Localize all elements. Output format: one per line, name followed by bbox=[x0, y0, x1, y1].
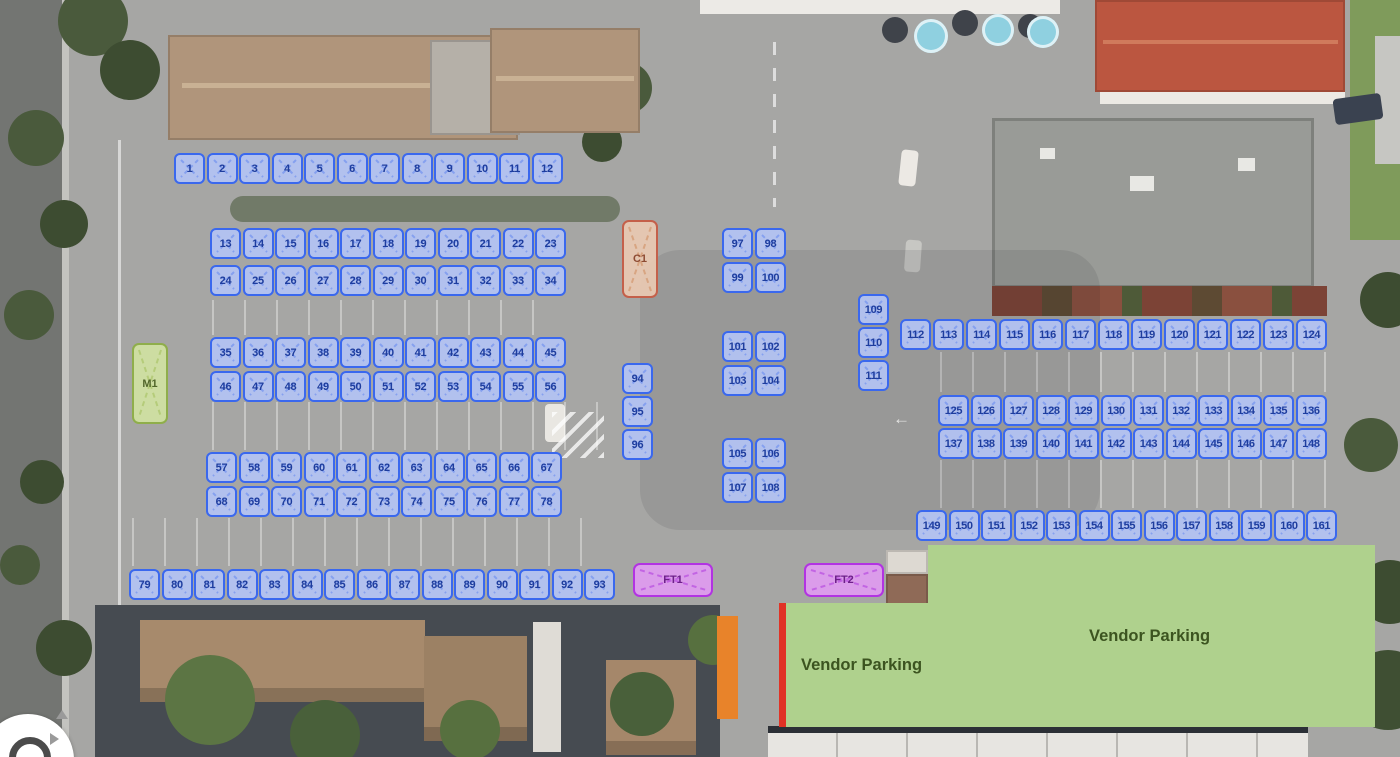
booth-number: 24 bbox=[220, 275, 232, 287]
booth-number: 113 bbox=[940, 329, 957, 341]
special-booth-label: FT1 bbox=[663, 574, 683, 586]
booth-number: 125 bbox=[945, 405, 962, 417]
booth-number: 141 bbox=[1075, 438, 1092, 450]
booth-29[interactable]: 29 bbox=[373, 265, 404, 296]
booth-number: 59 bbox=[281, 462, 293, 474]
booth-41[interactable]: 41 bbox=[405, 337, 436, 368]
booth-130[interactable]: 130 bbox=[1101, 395, 1132, 426]
booth-number: 30 bbox=[415, 275, 427, 287]
booth-156[interactable]: 156 bbox=[1144, 510, 1175, 541]
booth-115[interactable]: 115 bbox=[999, 319, 1030, 350]
booth-number: 97 bbox=[732, 238, 744, 250]
booth-59[interactable]: 59 bbox=[271, 452, 302, 483]
driveway bbox=[533, 622, 561, 752]
booth-75[interactable]: 75 bbox=[434, 486, 465, 517]
booth-number: 123 bbox=[1270, 329, 1287, 341]
tree bbox=[4, 290, 54, 340]
booth-122[interactable]: 122 bbox=[1230, 319, 1261, 350]
booth-number: 86 bbox=[366, 579, 378, 591]
booth-number: 19 bbox=[415, 238, 427, 250]
booth-74[interactable]: 74 bbox=[401, 486, 432, 517]
booth-number: 147 bbox=[1270, 438, 1287, 450]
booth-60[interactable]: 60 bbox=[304, 452, 335, 483]
booth-26[interactable]: 26 bbox=[275, 265, 306, 296]
booth-117[interactable]: 117 bbox=[1065, 319, 1096, 350]
booth-number: 143 bbox=[1140, 438, 1157, 450]
booth-number: 42 bbox=[447, 347, 459, 359]
booth-158[interactable]: 158 bbox=[1209, 510, 1240, 541]
special-booth-label: C1 bbox=[633, 253, 647, 265]
booth-8[interactable]: 8 bbox=[402, 153, 433, 184]
booth-number: 156 bbox=[1150, 520, 1167, 532]
curb-line bbox=[118, 140, 121, 630]
booth-number: 15 bbox=[285, 238, 297, 250]
booth-50[interactable]: 50 bbox=[340, 371, 371, 402]
booth-67[interactable]: 67 bbox=[531, 452, 562, 483]
booth-number: 56 bbox=[545, 381, 557, 393]
booth-15[interactable]: 15 bbox=[275, 228, 306, 259]
booth-number: 104 bbox=[762, 375, 779, 387]
roof-unit bbox=[1238, 158, 1255, 171]
road-arrow-left-icon: ← bbox=[893, 410, 910, 427]
special-booth-label: FT2 bbox=[834, 574, 854, 586]
booth-123[interactable]: 123 bbox=[1263, 319, 1294, 350]
booth-13[interactable]: 13 bbox=[210, 228, 241, 259]
vendor-market-map: ← Vendor ParkingVendor Parking 123456789… bbox=[0, 0, 1400, 757]
booth-number: 62 bbox=[378, 462, 390, 474]
booth-126[interactable]: 126 bbox=[971, 395, 1002, 426]
booth-81[interactable]: 81 bbox=[194, 569, 225, 600]
building-white-bottom bbox=[768, 733, 1308, 757]
booth-number: 99 bbox=[732, 272, 744, 284]
booth-56[interactable]: 56 bbox=[535, 371, 566, 402]
booth-number: 103 bbox=[729, 375, 746, 387]
booth-number: 73 bbox=[378, 496, 390, 508]
booth-40[interactable]: 40 bbox=[373, 337, 404, 368]
booth-30[interactable]: 30 bbox=[405, 265, 436, 296]
booth-number: 4 bbox=[284, 163, 290, 175]
booth-25[interactable]: 25 bbox=[243, 265, 274, 296]
booth-36[interactable]: 36 bbox=[243, 337, 274, 368]
booth-89[interactable]: 89 bbox=[454, 569, 485, 600]
booth-97[interactable]: 97 bbox=[722, 228, 753, 259]
booth-57[interactable]: 57 bbox=[206, 452, 237, 483]
booth-101[interactable]: 101 bbox=[722, 331, 753, 362]
booth-4[interactable]: 4 bbox=[272, 153, 303, 184]
vendor-parking-left-label: Vendor Parking bbox=[801, 656, 922, 675]
booth-83[interactable]: 83 bbox=[259, 569, 290, 600]
booth-number: 29 bbox=[382, 275, 394, 287]
booth-103[interactable]: 103 bbox=[722, 365, 753, 396]
booth-number: 139 bbox=[1010, 438, 1027, 450]
booth-125[interactable]: 125 bbox=[938, 395, 969, 426]
booth-153[interactable]: 153 bbox=[1046, 510, 1077, 541]
booth-number: 48 bbox=[285, 381, 297, 393]
booth-62[interactable]: 62 bbox=[369, 452, 400, 483]
booth-number: 53 bbox=[447, 381, 459, 393]
booth-151[interactable]: 151 bbox=[981, 510, 1012, 541]
booth-number: 96 bbox=[632, 439, 644, 451]
booth-number: 154 bbox=[1085, 520, 1102, 532]
booth-108[interactable]: 108 bbox=[755, 472, 786, 503]
booth-152[interactable]: 152 bbox=[1014, 510, 1045, 541]
tree bbox=[1344, 418, 1398, 472]
booth-number: 17 bbox=[350, 238, 362, 250]
booth-47[interactable]: 47 bbox=[243, 371, 274, 402]
booth-number: 145 bbox=[1205, 438, 1222, 450]
booth-12[interactable]: 12 bbox=[532, 153, 563, 184]
booth-number: 144 bbox=[1172, 438, 1189, 450]
booth-number: 114 bbox=[973, 329, 990, 341]
booth-150[interactable]: 150 bbox=[949, 510, 980, 541]
booth-87[interactable]: 87 bbox=[389, 569, 420, 600]
booth-142[interactable]: 142 bbox=[1101, 428, 1132, 459]
special-booth-label: M1 bbox=[142, 378, 157, 390]
booth-14[interactable]: 14 bbox=[243, 228, 274, 259]
booth-128[interactable]: 128 bbox=[1036, 395, 1067, 426]
booth-44[interactable]: 44 bbox=[503, 337, 534, 368]
booth-46[interactable]: 46 bbox=[210, 371, 241, 402]
booth-23[interactable]: 23 bbox=[535, 228, 566, 259]
booth-number: 25 bbox=[252, 275, 264, 287]
booth-134[interactable]: 134 bbox=[1231, 395, 1262, 426]
booth-48[interactable]: 48 bbox=[275, 371, 306, 402]
booth-138[interactable]: 138 bbox=[971, 428, 1002, 459]
booth-number: 93 bbox=[594, 579, 606, 591]
booth-107[interactable]: 107 bbox=[722, 472, 753, 503]
booth-120[interactable]: 120 bbox=[1164, 319, 1195, 350]
booth-53[interactable]: 53 bbox=[438, 371, 469, 402]
tree bbox=[40, 200, 88, 248]
booth-number: 43 bbox=[480, 347, 492, 359]
booth-104[interactable]: 104 bbox=[755, 365, 786, 396]
booth-66[interactable]: 66 bbox=[499, 452, 530, 483]
booth-number: 121 bbox=[1204, 329, 1221, 341]
booth-136[interactable]: 136 bbox=[1296, 395, 1327, 426]
booth-number: 100 bbox=[762, 272, 779, 284]
booth-94[interactable]: 94 bbox=[622, 363, 653, 394]
booth-number: 8 bbox=[414, 163, 420, 175]
booth-number: 74 bbox=[411, 496, 423, 508]
special-booth-ft2[interactable]: FT2 bbox=[804, 563, 884, 597]
booth-71[interactable]: 71 bbox=[304, 486, 335, 517]
booth-79[interactable]: 79 bbox=[129, 569, 160, 600]
booth-63[interactable]: 63 bbox=[401, 452, 432, 483]
booth-92[interactable]: 92 bbox=[552, 569, 583, 600]
booth-number: 112 bbox=[907, 329, 924, 341]
booth-73[interactable]: 73 bbox=[369, 486, 400, 517]
special-booth-m1[interactable]: M1 bbox=[132, 343, 168, 424]
booth-number: 153 bbox=[1053, 520, 1070, 532]
booth-121[interactable]: 121 bbox=[1197, 319, 1228, 350]
booth-129[interactable]: 129 bbox=[1068, 395, 1099, 426]
storage-tank bbox=[982, 14, 1014, 46]
booth-139[interactable]: 139 bbox=[1003, 428, 1034, 459]
booth-number: 119 bbox=[1138, 329, 1155, 341]
booth-96[interactable]: 96 bbox=[622, 429, 653, 460]
roof-unit bbox=[1040, 148, 1055, 159]
booth-49[interactable]: 49 bbox=[308, 371, 339, 402]
tree bbox=[36, 620, 92, 676]
booth-137[interactable]: 137 bbox=[938, 428, 969, 459]
booth-112[interactable]: 112 bbox=[900, 319, 931, 350]
booth-113[interactable]: 113 bbox=[933, 319, 964, 350]
booth-number: 36 bbox=[252, 347, 264, 359]
booth-110[interactable]: 110 bbox=[858, 327, 889, 358]
booth-number: 148 bbox=[1302, 438, 1319, 450]
booth-number: 158 bbox=[1215, 520, 1232, 532]
booth-number: 65 bbox=[476, 462, 488, 474]
booth-number: 32 bbox=[480, 275, 492, 287]
booth-24[interactable]: 24 bbox=[210, 265, 241, 296]
booth-65[interactable]: 65 bbox=[466, 452, 497, 483]
booth-114[interactable]: 114 bbox=[966, 319, 997, 350]
storage-tank bbox=[1027, 16, 1059, 48]
booth-148[interactable]: 148 bbox=[1296, 428, 1327, 459]
booth-number: 117 bbox=[1072, 329, 1089, 341]
booth-93[interactable]: 93 bbox=[584, 569, 615, 600]
booth-76[interactable]: 76 bbox=[466, 486, 497, 517]
booth-42[interactable]: 42 bbox=[438, 337, 469, 368]
booth-86[interactable]: 86 bbox=[357, 569, 388, 600]
pan-up-arrow-icon[interactable] bbox=[56, 710, 68, 719]
booth-5[interactable]: 5 bbox=[304, 153, 335, 184]
booth-number: 38 bbox=[317, 347, 329, 359]
booth-number: 92 bbox=[561, 579, 573, 591]
booth-140[interactable]: 140 bbox=[1036, 428, 1067, 459]
tree bbox=[8, 110, 64, 166]
booth-number: 80 bbox=[171, 579, 183, 591]
booth-number: 13 bbox=[220, 238, 232, 250]
booth-35[interactable]: 35 bbox=[210, 337, 241, 368]
booth-135[interactable]: 135 bbox=[1263, 395, 1294, 426]
booth-number: 89 bbox=[464, 579, 476, 591]
booth-number: 131 bbox=[1140, 405, 1157, 417]
tree bbox=[440, 700, 500, 757]
booth-99[interactable]: 99 bbox=[722, 262, 753, 293]
booth-143[interactable]: 143 bbox=[1133, 428, 1164, 459]
booth-9[interactable]: 9 bbox=[434, 153, 465, 184]
booth-number: 45 bbox=[545, 347, 557, 359]
booth-number: 90 bbox=[496, 579, 508, 591]
parking-lines bbox=[212, 402, 604, 450]
booth-124[interactable]: 124 bbox=[1296, 319, 1327, 350]
booth-28[interactable]: 28 bbox=[340, 265, 371, 296]
booth-161[interactable]: 161 bbox=[1306, 510, 1337, 541]
booth-number: 102 bbox=[762, 341, 779, 353]
storage-tank bbox=[952, 10, 978, 36]
booth-number: 124 bbox=[1303, 329, 1320, 341]
booth-number: 49 bbox=[317, 381, 329, 393]
booth-132[interactable]: 132 bbox=[1166, 395, 1197, 426]
booth-27[interactable]: 27 bbox=[308, 265, 339, 296]
booth-number: 98 bbox=[765, 238, 777, 250]
booth-127[interactable]: 127 bbox=[1003, 395, 1034, 426]
booth-58[interactable]: 58 bbox=[239, 452, 270, 483]
booth-51[interactable]: 51 bbox=[373, 371, 404, 402]
special-booth-c1[interactable]: C1 bbox=[622, 220, 658, 298]
booth-number: 34 bbox=[545, 275, 557, 287]
booth-number: 108 bbox=[762, 482, 779, 494]
booth-39[interactable]: 39 bbox=[340, 337, 371, 368]
booth-77[interactable]: 77 bbox=[499, 486, 530, 517]
booth-34[interactable]: 34 bbox=[535, 265, 566, 296]
zone-red-barrier bbox=[779, 603, 786, 727]
tree bbox=[100, 40, 160, 100]
booth-52[interactable]: 52 bbox=[405, 371, 436, 402]
pan-right-arrow-icon[interactable] bbox=[50, 733, 59, 745]
booth-102[interactable]: 102 bbox=[755, 331, 786, 362]
small-building-white bbox=[886, 550, 928, 574]
booth-43[interactable]: 43 bbox=[470, 337, 501, 368]
booth-number: 40 bbox=[382, 347, 394, 359]
booth-38[interactable]: 38 bbox=[308, 337, 339, 368]
booth-number: 88 bbox=[431, 579, 443, 591]
booth-31[interactable]: 31 bbox=[438, 265, 469, 296]
booth-154[interactable]: 154 bbox=[1079, 510, 1110, 541]
booth-number: 23 bbox=[545, 238, 557, 250]
booth-88[interactable]: 88 bbox=[422, 569, 453, 600]
booth-number: 151 bbox=[988, 520, 1005, 532]
booth-6[interactable]: 6 bbox=[337, 153, 368, 184]
booth-82[interactable]: 82 bbox=[227, 569, 258, 600]
booth-72[interactable]: 72 bbox=[336, 486, 367, 517]
booth-number: 70 bbox=[281, 496, 293, 508]
booth-149[interactable]: 149 bbox=[916, 510, 947, 541]
booth-number: 127 bbox=[1010, 405, 1027, 417]
booth-147[interactable]: 147 bbox=[1263, 428, 1294, 459]
booth-69[interactable]: 69 bbox=[239, 486, 270, 517]
booth-number: 64 bbox=[443, 462, 455, 474]
booth-number: 130 bbox=[1107, 405, 1124, 417]
booth-number: 57 bbox=[216, 462, 228, 474]
booth-91[interactable]: 91 bbox=[519, 569, 550, 600]
booth-number: 137 bbox=[945, 438, 962, 450]
building-red-roof bbox=[1095, 0, 1345, 92]
booth-11[interactable]: 11 bbox=[499, 153, 530, 184]
booth-number: 75 bbox=[443, 496, 455, 508]
booth-85[interactable]: 85 bbox=[324, 569, 355, 600]
booth-159[interactable]: 159 bbox=[1241, 510, 1272, 541]
booth-90[interactable]: 90 bbox=[487, 569, 518, 600]
booth-118[interactable]: 118 bbox=[1098, 319, 1129, 350]
booth-80[interactable]: 80 bbox=[162, 569, 193, 600]
tree bbox=[165, 655, 255, 745]
booth-157[interactable]: 157 bbox=[1176, 510, 1207, 541]
booth-37[interactable]: 37 bbox=[275, 337, 306, 368]
roof-unit bbox=[1130, 176, 1154, 191]
booth-number: 87 bbox=[399, 579, 411, 591]
booth-144[interactable]: 144 bbox=[1166, 428, 1197, 459]
booth-number: 129 bbox=[1075, 405, 1092, 417]
booth-number: 6 bbox=[349, 163, 355, 175]
booth-number: 55 bbox=[512, 381, 524, 393]
booth-number: 134 bbox=[1237, 405, 1254, 417]
booth-68[interactable]: 68 bbox=[206, 486, 237, 517]
booth-10[interactable]: 10 bbox=[467, 153, 498, 184]
booth-16[interactable]: 16 bbox=[308, 228, 339, 259]
booth-111[interactable]: 111 bbox=[858, 360, 889, 391]
booth-54[interactable]: 54 bbox=[470, 371, 501, 402]
booth-number: 33 bbox=[512, 275, 524, 287]
hatched-no-parking bbox=[552, 412, 604, 458]
booth-number: 133 bbox=[1205, 405, 1222, 417]
booth-109[interactable]: 109 bbox=[858, 294, 889, 325]
booth-number: 135 bbox=[1270, 405, 1287, 417]
booth-number: 72 bbox=[346, 496, 358, 508]
booth-61[interactable]: 61 bbox=[336, 452, 367, 483]
booth-number: 110 bbox=[865, 337, 882, 349]
booth-number: 116 bbox=[1039, 329, 1056, 341]
booth-32[interactable]: 32 bbox=[470, 265, 501, 296]
booth-number: 115 bbox=[1006, 329, 1023, 341]
booth-number: 128 bbox=[1042, 405, 1059, 417]
booth-number: 140 bbox=[1042, 438, 1059, 450]
booth-number: 46 bbox=[220, 381, 232, 393]
booth-100[interactable]: 100 bbox=[755, 262, 786, 293]
booth-17[interactable]: 17 bbox=[340, 228, 371, 259]
booth-number: 94 bbox=[632, 373, 644, 385]
tree bbox=[610, 672, 674, 736]
booth-number: 14 bbox=[252, 238, 264, 250]
booth-number: 41 bbox=[415, 347, 427, 359]
tree bbox=[20, 460, 64, 504]
booth-78[interactable]: 78 bbox=[531, 486, 562, 517]
booth-1[interactable]: 1 bbox=[174, 153, 205, 184]
booth-33[interactable]: 33 bbox=[503, 265, 534, 296]
booth-21[interactable]: 21 bbox=[470, 228, 501, 259]
booth-22[interactable]: 22 bbox=[503, 228, 534, 259]
booth-55[interactable]: 55 bbox=[503, 371, 534, 402]
booth-70[interactable]: 70 bbox=[271, 486, 302, 517]
booth-160[interactable]: 160 bbox=[1274, 510, 1305, 541]
booth-145[interactable]: 145 bbox=[1198, 428, 1229, 459]
booth-141[interactable]: 141 bbox=[1068, 428, 1099, 459]
booth-84[interactable]: 84 bbox=[292, 569, 323, 600]
booth-98[interactable]: 98 bbox=[755, 228, 786, 259]
booth-3[interactable]: 3 bbox=[239, 153, 270, 184]
booth-number: 44 bbox=[512, 347, 524, 359]
booth-number: 132 bbox=[1172, 405, 1189, 417]
booth-18[interactable]: 18 bbox=[373, 228, 404, 259]
booth-131[interactable]: 131 bbox=[1133, 395, 1164, 426]
booth-95[interactable]: 95 bbox=[622, 396, 653, 427]
booth-105[interactable]: 105 bbox=[722, 438, 753, 469]
booth-number: 77 bbox=[508, 496, 520, 508]
booth-number: 69 bbox=[248, 496, 260, 508]
booth-106[interactable]: 106 bbox=[755, 438, 786, 469]
booth-number: 2 bbox=[219, 163, 225, 175]
special-booth-ft1[interactable]: FT1 bbox=[633, 563, 713, 597]
booth-number: 35 bbox=[220, 347, 232, 359]
booth-20[interactable]: 20 bbox=[438, 228, 469, 259]
booth-116[interactable]: 116 bbox=[1032, 319, 1063, 350]
booth-number: 16 bbox=[317, 238, 329, 250]
booth-number: 109 bbox=[865, 304, 882, 316]
booth-64[interactable]: 64 bbox=[434, 452, 465, 483]
booth-number: 11 bbox=[509, 163, 520, 175]
booth-19[interactable]: 19 bbox=[405, 228, 436, 259]
booth-146[interactable]: 146 bbox=[1231, 428, 1262, 459]
booth-number: 21 bbox=[480, 238, 492, 250]
booth-number: 66 bbox=[508, 462, 520, 474]
booth-119[interactable]: 119 bbox=[1131, 319, 1162, 350]
booth-133[interactable]: 133 bbox=[1198, 395, 1229, 426]
booth-155[interactable]: 155 bbox=[1111, 510, 1142, 541]
booth-45[interactable]: 45 bbox=[535, 337, 566, 368]
booth-7[interactable]: 7 bbox=[369, 153, 400, 184]
booth-2[interactable]: 2 bbox=[207, 153, 238, 184]
